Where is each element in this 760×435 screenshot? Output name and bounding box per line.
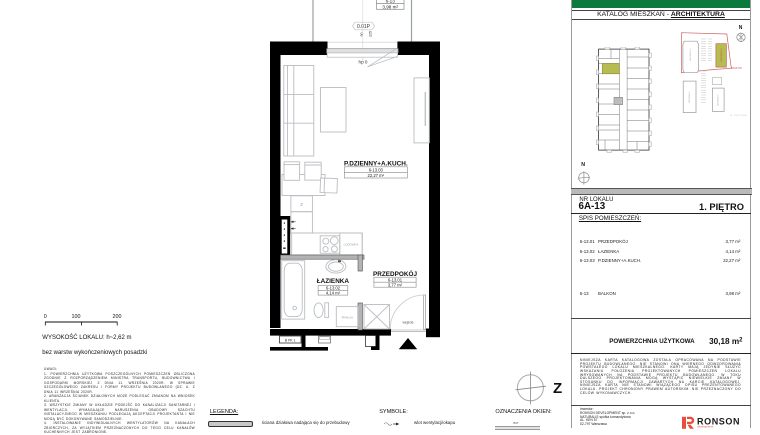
svg-text:ETAP VIII: ETAP VIII — [731, 67, 742, 70]
svg-text:22,27 m²: 22,27 m² — [368, 173, 385, 178]
svg-text:0.01P: 0.01P — [357, 24, 371, 30]
svg-text:Z: Z — [553, 380, 562, 397]
svg-text:NATURALIS II: NATURALIS II — [720, 48, 723, 62]
svg-text:wejście: wejście — [402, 320, 413, 324]
svg-text:90: 90 — [360, 33, 364, 37]
svg-text:NATURALIS: NATURALIS — [688, 91, 691, 103]
svg-text:4,14 m²: 4,14 m² — [326, 290, 341, 295]
svg-text:N: N — [739, 25, 743, 31]
svg-text:6-13.03: 6-13.03 — [369, 167, 384, 172]
svg-text:hp 0: hp 0 — [359, 59, 368, 64]
svg-text:3,98 m²: 3,98 m² — [382, 4, 398, 9]
svg-text:3,77 m²: 3,77 m² — [388, 282, 403, 287]
svg-text:P.DZIENNY+A.KUCH.: P.DZIENNY+A.KUCH. — [344, 160, 408, 167]
svg-text:100: 100 — [72, 314, 81, 320]
svg-text:B PK 1: B PK 1 — [285, 338, 296, 342]
svg-text:225: 225 — [369, 31, 373, 37]
svg-text:0: 0 — [44, 314, 47, 320]
svg-text:200: 200 — [113, 314, 122, 320]
svg-text:UL. POZYTYWKI: UL. POZYTYWKI — [730, 115, 747, 117]
svg-text:LODÓWKA: LODÓWKA — [344, 242, 359, 247]
svg-text:6-13: 6-13 — [386, 0, 396, 4]
svg-text:NATURALIS I: NATURALIS I — [689, 48, 692, 61]
svg-text:NATURALIS: NATURALIS — [717, 94, 720, 106]
svg-text:ŁAZIENKA: ŁAZIENKA — [317, 278, 350, 285]
svg-text:Z: Z — [300, 202, 303, 207]
svg-text:PRALKA: PRALKA — [342, 315, 353, 319]
